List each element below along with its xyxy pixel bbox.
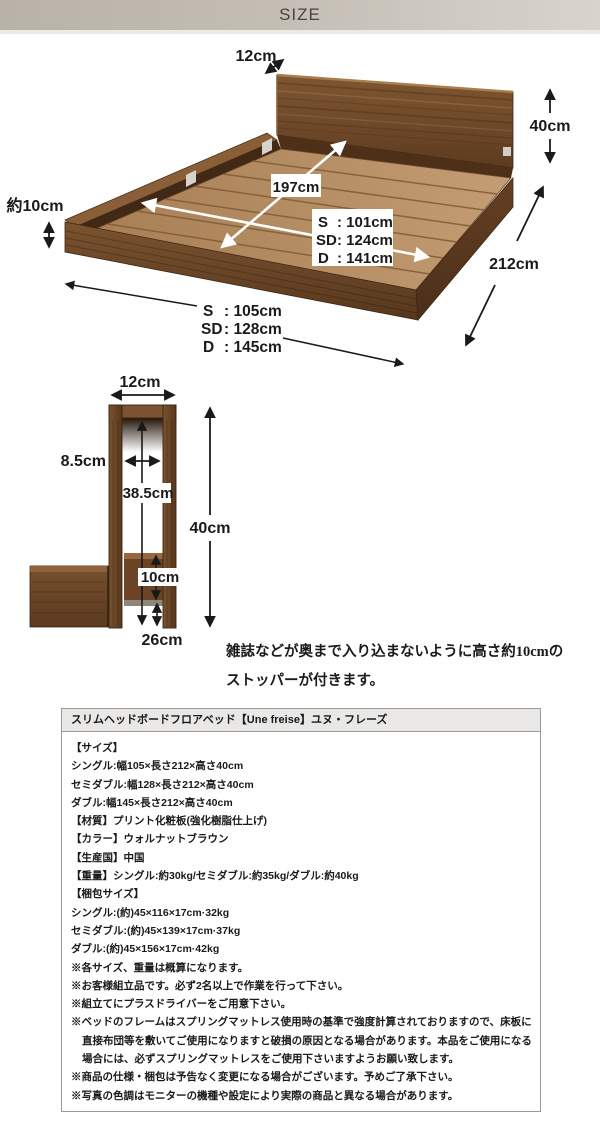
spec-line: 【カラー】ウォルナットブラウン [71, 830, 530, 848]
svg-text:S : 105cm SD: S : 105cm SD : 128cm D : 145cm [201, 303, 286, 356]
spec-line: 直接布団等を敷いてご使用になりますと破損の原因となる場合があります。本品をご使用… [71, 1032, 530, 1050]
size-header-band: SIZE [0, 0, 600, 30]
dim-frame-height: 約10cm [7, 196, 64, 247]
spec-line: ダブル:(約)45×156×17cm·42kg [71, 940, 530, 958]
svg-text:12cm: 12cm [236, 48, 277, 65]
spec-line: ※組立てにプラスドライバーをご用意下さい。 [71, 995, 530, 1013]
label-inner-width-box: S : 101cm SD : 124cm D : 141cm [312, 209, 397, 267]
svg-text:40cm: 40cm [190, 520, 231, 537]
svg-text:S : 101cm SD: S : 101cm SD : 124cm D : 141cm [316, 214, 397, 267]
spec-table: スリムヘッドボードフロアベッド【Une freise】ユヌ・フレーズ 【サイズ】… [61, 708, 541, 1112]
product-size-page: SIZE [0, 0, 600, 1127]
inner-width-row-key: D [318, 250, 329, 267]
inner-width-row-value: : 141cm [337, 250, 393, 267]
svg-text:雑誌などが奥まで入り込まないように高さ約10cmの: 雑誌などが奥まで入り込まないように高さ約10cmの [225, 642, 563, 660]
spec-line: 場合には、必ずスプリングマットレスをご使用下さいますようお願い致します。 [71, 1050, 530, 1068]
svg-text:38.5cm: 38.5cm [123, 485, 174, 502]
inner-width-row-key: S [318, 214, 328, 231]
outer-width-row-value: : 145cm [224, 339, 282, 356]
svg-text:212cm: 212cm [489, 256, 539, 273]
svg-text:12cm: 12cm [120, 374, 161, 391]
label-inner-length: 197cm [271, 174, 321, 197]
page-title: SIZE [279, 5, 321, 25]
bed-3d-diagram: 197cm S : 101cm SD : 124cm D : 141cm 12c… [0, 35, 600, 368]
spec-line: 【重量】シングル:約30kg/セミダブル:約35kg/ダブル:約40kg [71, 867, 530, 885]
spec-line: セミダブル:幅128×長さ212×高さ40cm [71, 776, 530, 794]
spec-line: ※各サイズ、重量は概算になります。 [71, 959, 530, 977]
dim-bed-height: 40cm [530, 90, 571, 162]
svg-text:8.5cm: 8.5cm [61, 453, 106, 470]
dim-headboard-thickness: 12cm [236, 48, 283, 73]
spec-line: 【生産国】中国 [71, 849, 530, 867]
headboard-cross-section-diagram: 12cm 38.5cm 8.5cm 40cm 10cm [0, 368, 600, 695]
svg-text:約10cm: 約10cm [7, 196, 64, 215]
spec-line: ※写真の色調はモニターの機種や設定により実際の商品と異なる場合があります。 [71, 1087, 530, 1105]
spec-line: シングル:幅105×長さ212×高さ40cm [71, 757, 530, 775]
outer-width-row-key: SD [201, 321, 223, 338]
spec-line: ダブル:幅145×長さ212×高さ40cm [71, 794, 530, 812]
inner-width-row-value: : 124cm [337, 232, 393, 249]
headboard-section-illustration [30, 405, 176, 628]
spec-line: ※お客様組立品です。必ず2名以上で作業を行って下さい。 [71, 977, 530, 995]
dim-section-height: 40cm [190, 408, 231, 626]
spec-line: 【梱包サイズ】 [71, 885, 530, 903]
outer-width-row-key: D [203, 339, 214, 356]
spec-line: シングル:(約)45×116×17cm·32kg [71, 904, 530, 922]
inner-width-row-key: SD [316, 232, 337, 249]
dim-headboard-width: 12cm [112, 374, 174, 395]
spec-line: 【材質】プリント化粧板(強化樹脂仕上げ) [71, 812, 530, 830]
bed-illustration [65, 75, 513, 320]
inner-width-row-value: : 101cm [337, 214, 393, 231]
header-bottom-strip [0, 30, 600, 34]
spec-title: スリムヘッドボードフロアベッド【Une freise】ユヌ・フレーズ [62, 709, 540, 732]
spec-line: ※ベッドのフレームはスプリングマットレス使用時の基準で強度計算されておりますので… [71, 1013, 530, 1031]
svg-text:10cm: 10cm [141, 569, 179, 586]
spec-line: セミダブル:(約)45×139×17cm·37kg [71, 922, 530, 940]
metal-bracket [503, 147, 511, 156]
svg-text:40cm: 40cm [530, 118, 571, 135]
spec-body: 【サイズ】 シングル:幅105×長さ212×高さ40cm セミダブル:幅128×… [62, 732, 540, 1111]
svg-text:197cm: 197cm [273, 179, 320, 196]
svg-text:ストッパーが付きます。: ストッパーが付きます。 [226, 671, 384, 689]
stopper-caption: 雑誌などが奥まで入り込まないように高さ約10cmの ストッパーが付きます。 [225, 642, 563, 689]
outer-width-row-value: : 105cm [224, 303, 282, 320]
spec-line: 【サイズ】 [71, 739, 530, 757]
outer-width-row-value: : 128cm [224, 321, 282, 338]
outer-width-row-key: S [203, 303, 213, 320]
spec-line: ※商品の仕様・梱包は予告なく変更になる場合がございます。予めご了承下さい。 [71, 1068, 530, 1086]
svg-text:26cm: 26cm [142, 632, 183, 649]
